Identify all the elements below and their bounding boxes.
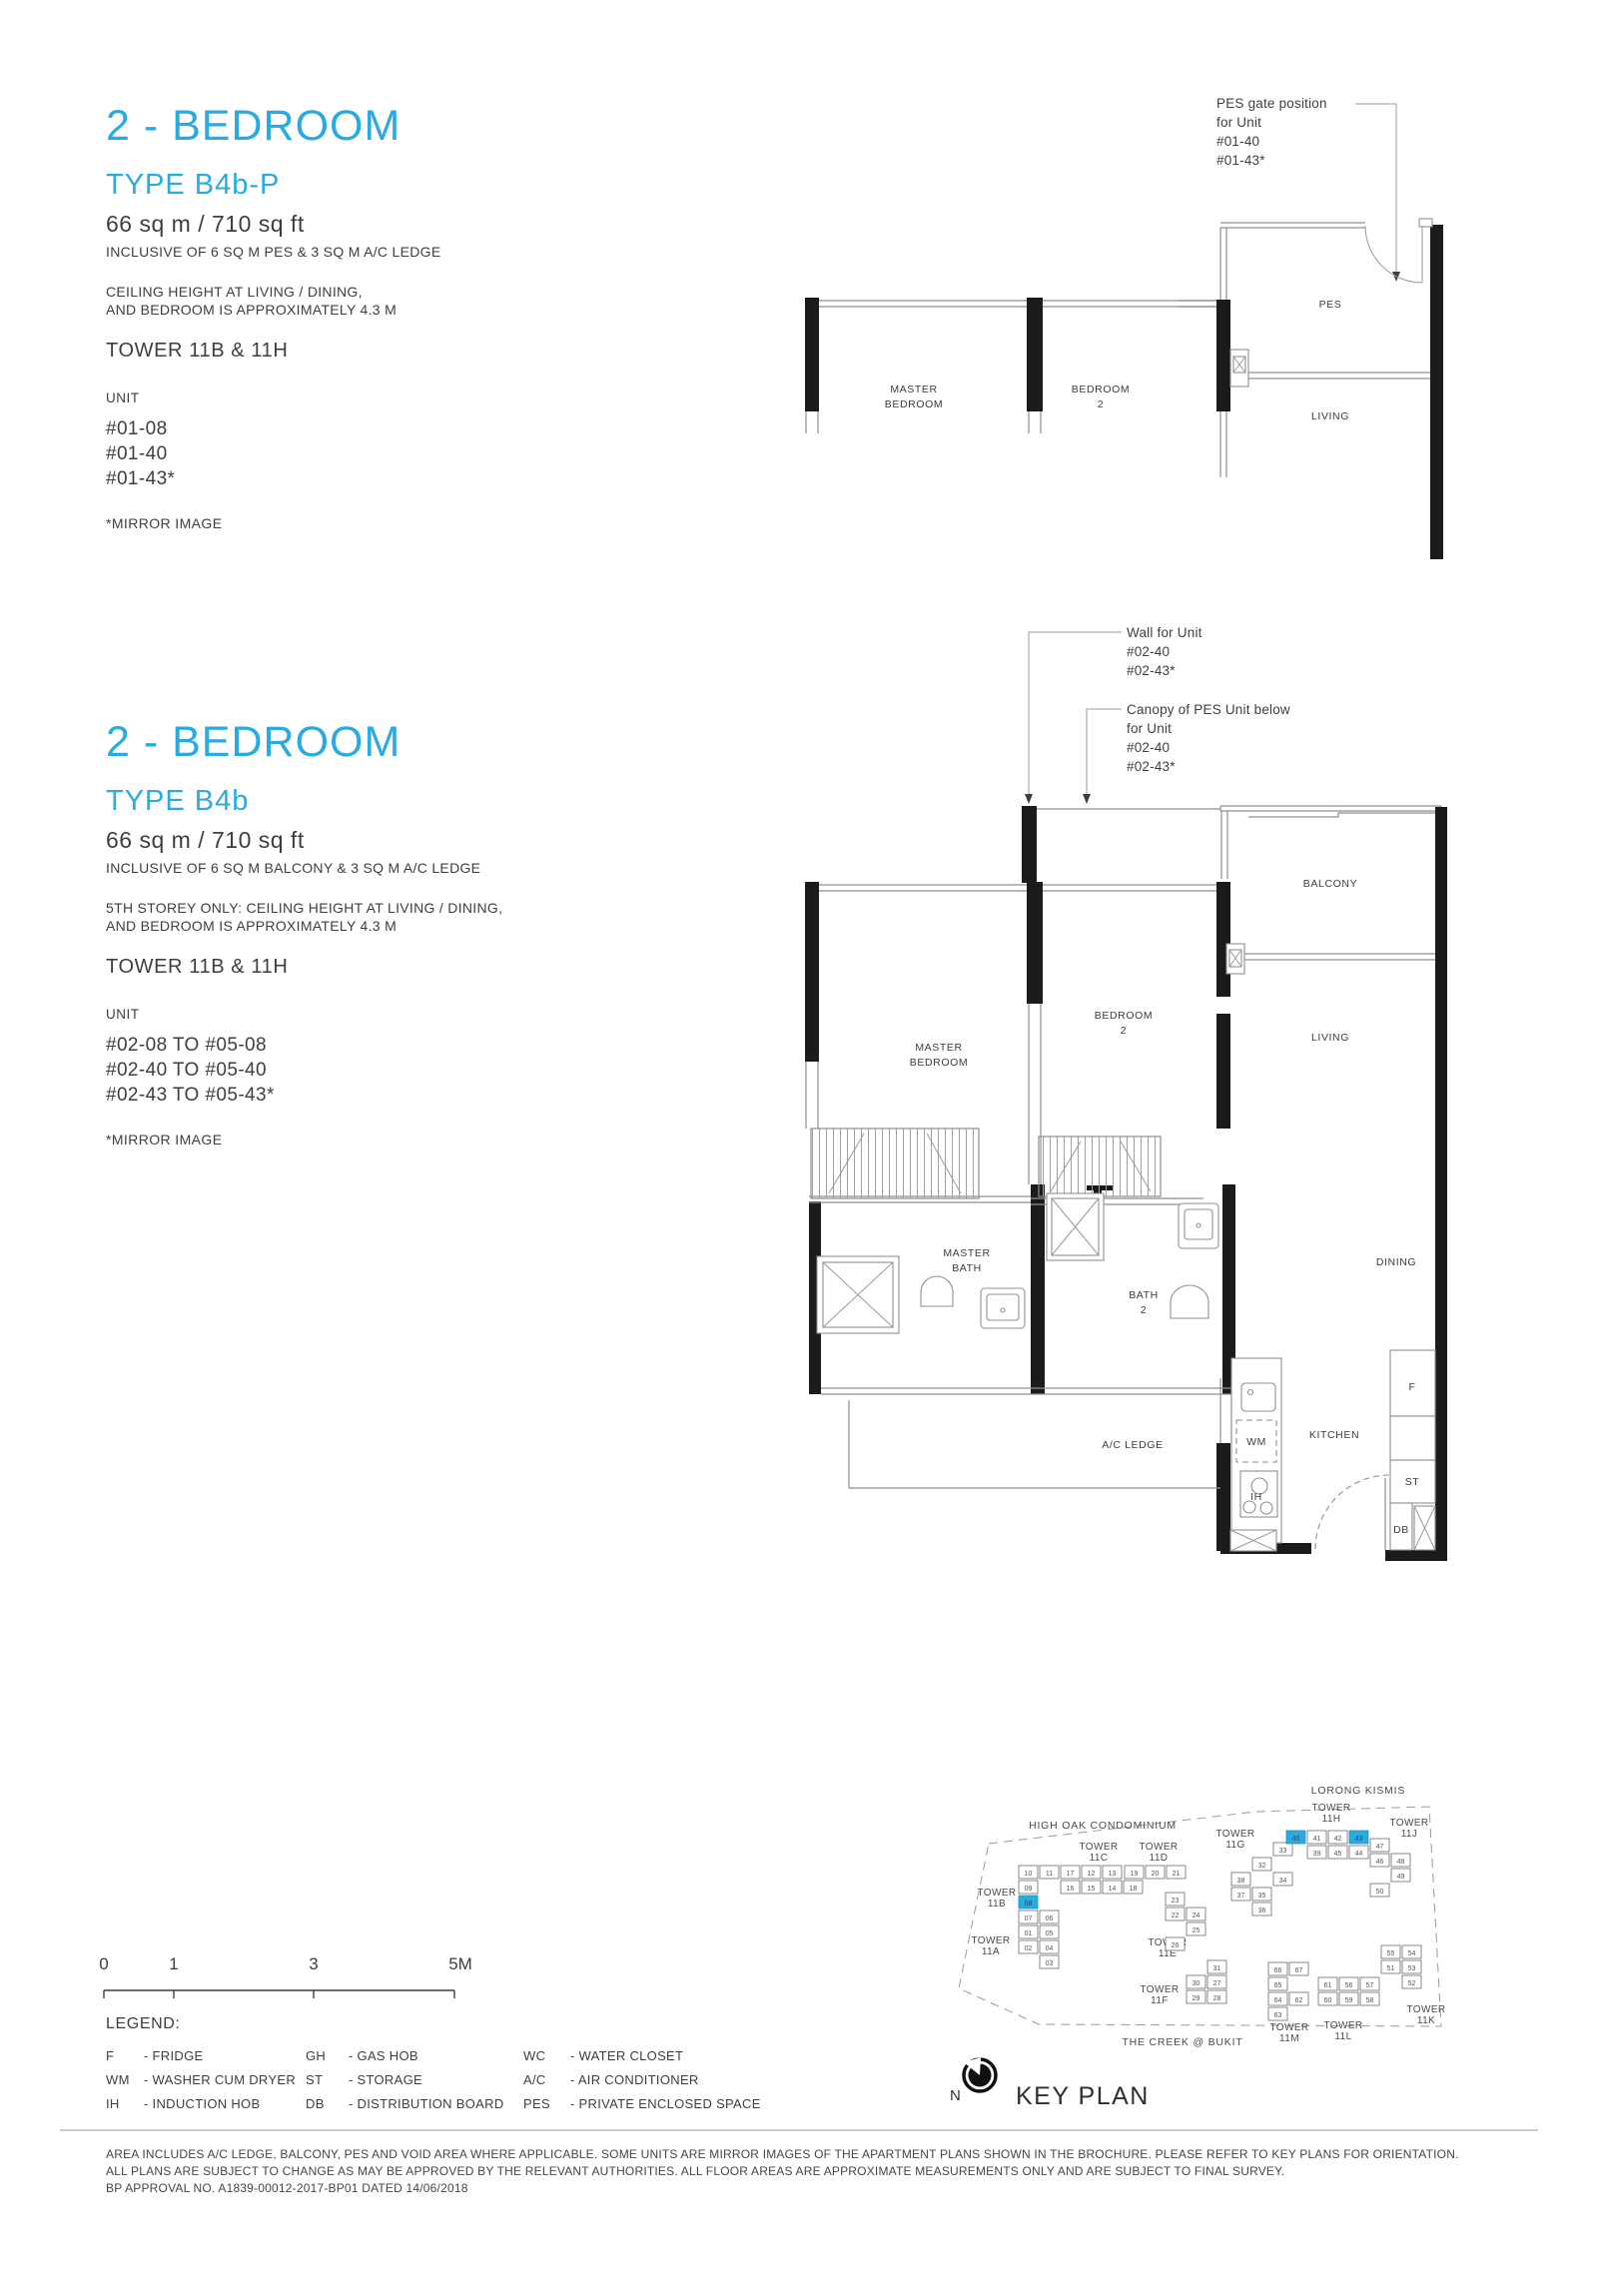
keyplan-unit-number: 03 — [1046, 1960, 1054, 1967]
keyplan-unit-number: 62 — [1295, 1997, 1303, 2004]
keyplan-unit-number: 45 — [1334, 1851, 1342, 1858]
wardrobe-master — [811, 1129, 979, 1198]
legend-abbr: IH — [106, 2096, 144, 2111]
disclaimer-line: AREA INCLUDES A/C LEDGE, BALCONY, PES AN… — [106, 2146, 1544, 2163]
keyplan-unit-number: 24 — [1193, 1913, 1200, 1919]
keyplan-unit-number: 34 — [1279, 1878, 1287, 1885]
label-storage: ST — [1405, 1476, 1420, 1488]
keyplan-unit-number: 02 — [1025, 1945, 1033, 1952]
svg-text:Canopy of PES Unit below: Canopy of PES Unit below — [1127, 702, 1290, 717]
unit-number: #01-08 — [106, 416, 665, 441]
scale-tick-5m: 5M — [448, 1954, 472, 1973]
tower-label: TOWER11K — [1406, 2004, 1445, 2026]
tower-label: TOWER 11B & 11H — [106, 341, 665, 361]
legend-item-st: ST- STORAGE — [306, 2067, 523, 2091]
legend-abbr: PES — [523, 2096, 570, 2111]
keyplan-unit-number: 33 — [1279, 1848, 1287, 1855]
keyplan-unit-number: 58 — [1366, 1997, 1374, 2004]
wardrobe-bedroom2 — [1039, 1137, 1161, 1196]
ceiling-line-1: CEILING HEIGHT AT LIVING / DINING, — [106, 283, 665, 301]
annotation-canopy: Canopy of PES Unit below for Unit #02-40… — [1083, 702, 1290, 804]
svg-text:Wall for Unit: Wall for Unit — [1127, 625, 1202, 640]
keyplan-unit-number: 50 — [1376, 1889, 1384, 1896]
unit-list-2: #02-08 TO #05-08 #02-40 TO #05-40 #02-43… — [106, 1033, 665, 1108]
legend-desc: - INDUCTION HOB — [144, 2096, 260, 2111]
keyplan-unit-number: 66 — [1274, 1967, 1282, 1974]
annotation-line: for Unit — [1216, 115, 1261, 130]
keyplan-unit-number: 26 — [1172, 1942, 1180, 1949]
tower-label: TOWER11B — [977, 1888, 1016, 1910]
keyplan-unit-number: 09 — [1025, 1886, 1033, 1893]
keyplan-unit-number: 11 — [1046, 1871, 1053, 1878]
north-label: N — [950, 2087, 961, 2104]
room-labels: BALCONY MASTER BEDROOM BEDROOM 2 LIVING … — [910, 878, 1420, 1536]
scale-bar-line — [104, 1990, 454, 1998]
unit-number: #01-40 — [106, 441, 665, 466]
keyplan-unit-number: 07 — [1025, 1915, 1033, 1922]
scale-tick-1: 1 — [169, 1954, 178, 1973]
keyplan-unit-number: 60 — [1324, 1997, 1332, 2004]
tower-label: TOWER11F — [1140, 1984, 1179, 2006]
kitchen-fixtures — [1230, 1350, 1435, 1551]
keyplan-unit-number: 22 — [1172, 1913, 1180, 1919]
scale-tick-3: 3 — [309, 1954, 318, 1973]
room-master-bedroom: MASTER — [890, 383, 937, 395]
scale-bar: 0 1 3 5M — [95, 1947, 514, 2007]
tower-label: TOWER11L — [1323, 2020, 1362, 2042]
ceiling-line-2: AND BEDROOM IS APPROXIMATELY 4.3 M — [106, 917, 665, 935]
keyplan-unit-number: 67 — [1295, 1967, 1303, 1974]
ac-unit-icon — [1226, 944, 1244, 974]
keyplan-unit-number: 27 — [1213, 1980, 1221, 1987]
svg-text:#02-43*: #02-43* — [1127, 663, 1176, 678]
annotation-line: PES gate position — [1216, 96, 1327, 111]
legend-abbr: WC — [523, 2048, 570, 2063]
svg-text:BATH: BATH — [952, 1262, 982, 1274]
keyplan-unit-number: 31 — [1213, 1965, 1221, 1972]
keyplan-cluster-11f: TOWER11F3130272928 — [1140, 1960, 1226, 2006]
legend-title: LEGEND: — [106, 2015, 180, 2033]
keyplan-unit-number: 64 — [1274, 1997, 1282, 2004]
legend-abbr: ST — [306, 2072, 349, 2087]
info-block-b4bp: 2 - BEDROOM TYPE B4b-P 66 sq m / 710 sq … — [106, 105, 665, 530]
svg-text:#02-43*: #02-43* — [1127, 759, 1176, 774]
room-labels: MASTER BEDROOM BEDROOM 2 PES LIVING — [885, 299, 1349, 422]
legend-desc: - AIR CONDITIONER — [570, 2072, 699, 2087]
entrance-door-arc — [1315, 1475, 1389, 1549]
tower-label: TOWER11G — [1215, 1829, 1254, 1851]
keyplan-cluster-11h: TOWER11H40414243394544 — [1286, 1803, 1368, 1859]
keyplan-unit-number: 08 — [1025, 1901, 1033, 1908]
unit-range: #02-08 TO #05-08 — [106, 1033, 665, 1058]
svg-text:for Unit: for Unit — [1127, 721, 1172, 736]
toilet-icon — [1171, 1285, 1208, 1318]
north-compass-icon — [964, 2057, 996, 2091]
inclusive-note-2: INCLUSIVE OF 6 SQ M BALCONY & 3 SQ M A/C… — [106, 859, 665, 877]
label-ih: IH — [1250, 1491, 1262, 1503]
keyplan-unit-number: 52 — [1408, 1980, 1416, 1987]
keyplan-title: KEY PLAN — [1016, 2082, 1150, 2110]
disclaimer-line: ALL PLANS ARE SUBJECT TO CHANGE AS MAY B… — [106, 2163, 1544, 2180]
keyplan-unit-number: 16 — [1067, 1886, 1075, 1893]
street-lorong-kismis: LORONG KISMIS — [1311, 1785, 1405, 1797]
keyplan-unit-number: 63 — [1274, 2012, 1282, 2019]
keyplan-unit-number: 49 — [1397, 1874, 1405, 1881]
ceiling-note: CEILING HEIGHT AT LIVING / DINING, AND B… — [106, 283, 665, 319]
keyplan-cluster-11e: TOWER11E2322242526 — [1148, 1893, 1205, 1959]
keyplan-unit-number: 15 — [1088, 1886, 1096, 1893]
keyplan-unit-number: 35 — [1258, 1893, 1266, 1900]
annotation-line: #01-43* — [1216, 153, 1265, 168]
canopy-outline — [1037, 806, 1441, 817]
keyplan-unit-number: 53 — [1408, 1965, 1416, 1972]
keyplan-unit-number: 65 — [1274, 1982, 1282, 1989]
keyplan-unit-number: 23 — [1172, 1898, 1180, 1905]
room-master-bath: MASTER — [943, 1247, 990, 1259]
tower-label: TOWER11C — [1079, 1842, 1118, 1864]
room-living: LIVING — [1311, 410, 1349, 422]
unit-range: #02-40 TO #05-40 — [106, 1058, 665, 1083]
keyplan-unit-number: 36 — [1258, 1908, 1266, 1914]
area-text-2: 66 sq m / 710 sq ft — [106, 829, 665, 852]
room-living: LIVING — [1311, 1032, 1349, 1044]
keyplan-unit-number: 04 — [1046, 1945, 1054, 1952]
annotation-line: #01-40 — [1216, 134, 1259, 149]
keyplan-cluster-11a: TOWER11A — [971, 1935, 1010, 1957]
type-label-2: TYPE B4b — [106, 787, 665, 816]
neighbor-the-creek: THE CREEK @ BUKIT — [1122, 2036, 1242, 2048]
tower-label: TOWER11D — [1139, 1842, 1178, 1864]
legend-desc: - WASHER CUM DRYER — [144, 2072, 296, 2087]
keyplan-unit-number: 41 — [1313, 1836, 1321, 1843]
keyplan-cluster-11d: TOWER11D192021 — [1125, 1842, 1186, 1879]
tower-label: TOWER11H — [1311, 1803, 1350, 1825]
legend-abbr: DB — [306, 2096, 349, 2111]
svg-text:#02-40: #02-40 — [1127, 644, 1170, 659]
room-bedroom-2: BEDROOM — [1095, 1010, 1153, 1022]
keyplan-unit-number: 39 — [1313, 1851, 1321, 1858]
keyplan-cluster-11l: TOWER11L615657605958 — [1318, 1977, 1379, 2042]
keyplan-unit-number: 14 — [1109, 1886, 1117, 1893]
legend-desc: - WATER CLOSET — [570, 2048, 683, 2063]
legend-desc: - STORAGE — [349, 2072, 422, 2087]
keyplan-unit-number: 55 — [1387, 1950, 1395, 1957]
legend-abbr: A/C — [523, 2072, 570, 2087]
keyplan-unit-number: 30 — [1193, 1980, 1200, 1987]
keyplan-unit-number: 38 — [1237, 1878, 1245, 1885]
info-block-b4b: 2 - BEDROOM TYPE B4b 66 sq m / 710 sq ft… — [106, 721, 665, 1147]
floorplan-b4bp: PES gate position for Unit #01-40 #01-43… — [739, 60, 1458, 559]
svg-text:2: 2 — [1141, 1304, 1147, 1316]
keyplan-unit-number: 59 — [1345, 1997, 1353, 2004]
svg-text:2: 2 — [1121, 1025, 1127, 1037]
keyplan-unit-number: 57 — [1366, 1982, 1374, 1989]
room-bath-2: BATH — [1129, 1289, 1159, 1301]
room-master-bedroom: MASTER — [915, 1042, 962, 1054]
unit-range: #02-43 TO #05-43* — [106, 1083, 665, 1108]
keyplan-unit-number: 61 — [1324, 1982, 1332, 1989]
keyplan-cluster-11k: TOWER11K5554515352 — [1381, 1945, 1446, 2026]
disclaimer: AREA INCLUDES A/C LEDGE, BALCONY, PES AN… — [106, 2146, 1544, 2197]
legend-item-wm: WM- WASHER CUM DRYER — [106, 2067, 306, 2091]
tower-label: TOWER11M — [1269, 2022, 1308, 2044]
leader-line — [1087, 709, 1122, 796]
legend-item-gh: GH- GAS HOB — [306, 2043, 523, 2067]
key-plan: LORONG KISMIS HIGH OAK CONDOMINIUM THE C… — [944, 1753, 1543, 2112]
keyplan-unit-number: 48 — [1397, 1859, 1405, 1866]
keyplan-unit-number: 42 — [1334, 1836, 1342, 1843]
keyplan-unit-number: 19 — [1131, 1871, 1139, 1878]
keyplan-cluster-11g: TOWER11G33323834373536 — [1215, 1829, 1292, 1915]
type-label: TYPE B4b-P — [106, 171, 665, 200]
keyplan-unit-number: 06 — [1046, 1915, 1054, 1922]
unit-list: #01-08 #01-40 #01-43* — [106, 416, 665, 491]
tower-label: TOWER11A — [971, 1935, 1010, 1957]
keyplan-unit-number: 13 — [1109, 1871, 1117, 1878]
toilet-icon — [921, 1276, 953, 1306]
page-title-2: 2 - BEDROOM — [106, 721, 665, 764]
keyplan-unit-number: 21 — [1173, 1871, 1181, 1878]
unit-heading: UNIT — [106, 391, 665, 405]
inclusive-note: INCLUSIVE OF 6 SQ M PES & 3 SQ M A/C LED… — [106, 243, 665, 261]
keyplan-unit-number: 10 — [1025, 1871, 1033, 1878]
label-fridge: F — [1408, 1381, 1415, 1393]
keyplan-unit-number: 44 — [1355, 1851, 1363, 1858]
windows — [806, 223, 1430, 477]
keyplan-unit-number: 40 — [1292, 1836, 1300, 1843]
legend-desc: - GAS HOB — [349, 2048, 418, 2063]
keyplan-unit-number: 17 — [1067, 1871, 1075, 1878]
disclaimer-line: BP APPROVAL NO. A1839-00012-2017-BP01 DA… — [106, 2180, 1544, 2197]
keyplan-unit-number: 01 — [1025, 1930, 1033, 1937]
keyplan-unit-number: 54 — [1408, 1950, 1416, 1957]
leader-arrow-icon — [1083, 794, 1091, 804]
unit-number: #01-43* — [106, 466, 665, 491]
keyplan-cluster-11m: TOWER11M666765646263 — [1268, 1962, 1309, 2044]
keyplan-unit-number: 46 — [1376, 1859, 1384, 1866]
unit-heading-2: UNIT — [106, 1008, 665, 1022]
legend-item-db: DB- DISTRIBUTION BOARD — [306, 2091, 523, 2115]
keyplan-unit-number: 32 — [1258, 1863, 1266, 1870]
keyplan-unit-number: 25 — [1193, 1927, 1200, 1934]
keyplan-unit-number: 05 — [1046, 1930, 1054, 1937]
keyplan-unit-number: 29 — [1193, 1995, 1200, 2002]
legend-desc: - PRIVATE ENCLOSED SPACE — [570, 2096, 761, 2111]
svg-text:#02-40: #02-40 — [1127, 740, 1170, 755]
svg-text:BEDROOM: BEDROOM — [885, 398, 943, 410]
keyplan-unit-number: 20 — [1152, 1871, 1160, 1878]
label-wm: WM — [1246, 1436, 1266, 1448]
legend-abbr: GH — [306, 2048, 349, 2063]
room-ac-ledge: A/C LEDGE — [1102, 1439, 1163, 1451]
leader-line — [1029, 632, 1122, 796]
neighbor-high-oak: HIGH OAK CONDOMINIUM — [1029, 1820, 1177, 1832]
tower-label: TOWER11J — [1389, 1818, 1428, 1840]
legend-desc: - DISTRIBUTION BOARD — [349, 2096, 504, 2111]
svg-text:BEDROOM: BEDROOM — [910, 1057, 968, 1069]
mirror-note: *MIRROR IMAGE — [106, 516, 665, 530]
room-pes: PES — [1319, 299, 1342, 311]
room-kitchen: KITCHEN — [1309, 1429, 1359, 1441]
area-text: 66 sq m / 710 sq ft — [106, 213, 665, 236]
svg-text:2: 2 — [1098, 398, 1104, 410]
tower-label-2: TOWER 11B & 11H — [106, 957, 665, 977]
leader-arrow-icon — [1025, 794, 1033, 804]
footer-divider — [60, 2129, 1538, 2131]
leader-line — [1355, 104, 1396, 274]
floorplan-b4b: Wall for Unit #02-40 #02-43* Canopy of P… — [739, 559, 1468, 1618]
mirror-note-2: *MIRROR IMAGE — [106, 1133, 665, 1147]
legend-item-ih: IH- INDUCTION HOB — [106, 2091, 306, 2115]
room-bedroom-2: BEDROOM — [1072, 383, 1130, 395]
sink-icon — [1241, 1383, 1275, 1411]
ceiling-line-1: 5TH STOREY ONLY: CEILING HEIGHT AT LIVIN… — [106, 899, 665, 917]
keyplan-unit-number: 37 — [1237, 1893, 1245, 1900]
ceiling-line-2: AND BEDROOM IS APPROXIMATELY 4.3 M — [106, 301, 665, 319]
legend-abbr: F — [106, 2048, 144, 2063]
legend-desc: - FRIDGE — [144, 2048, 203, 2063]
ceiling-note-2: 5TH STOREY ONLY: CEILING HEIGHT AT LIVIN… — [106, 899, 665, 935]
ac-unit-icon — [1230, 350, 1248, 386]
keyplan-unit-number: 18 — [1130, 1886, 1138, 1893]
keyplan-cluster-11j: TOWER11J4746484950 — [1370, 1818, 1429, 1897]
label-db: DB — [1393, 1524, 1409, 1536]
legend-abbr: WM — [106, 2072, 144, 2087]
scale-tick-0: 0 — [99, 1954, 108, 1973]
room-dining: DINING — [1376, 1256, 1416, 1268]
keyplan-unit-number: 56 — [1345, 1982, 1353, 1989]
keyplan-unit-number: 12 — [1088, 1871, 1096, 1878]
keyplan-unit-number: 43 — [1355, 1836, 1363, 1843]
keyplan-unit-number: 47 — [1376, 1844, 1384, 1851]
keyplan-unit-number: 51 — [1387, 1965, 1395, 1972]
room-balcony: BALCONY — [1303, 878, 1357, 890]
keyplan-unit-number: 28 — [1213, 1995, 1221, 2002]
master-bath-fixtures — [817, 1256, 1025, 1333]
page-title: 2 - BEDROOM — [106, 105, 665, 148]
legend-item-f: F- FRIDGE — [106, 2043, 306, 2067]
